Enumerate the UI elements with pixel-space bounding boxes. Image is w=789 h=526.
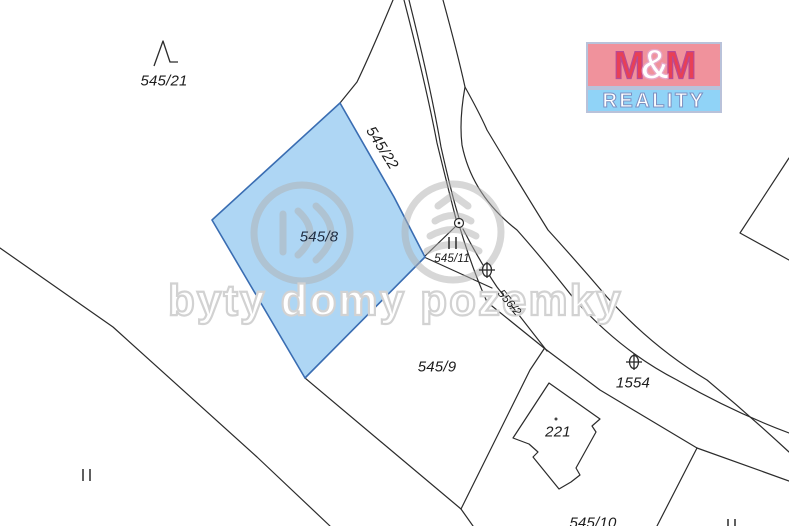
tree-symbol-icon [154, 41, 178, 66]
boundary-line [305, 378, 461, 509]
mm-reality-logo: M&M REALITY [586, 42, 722, 113]
parcel-label-221: 221 [545, 424, 571, 441]
parcel-label-545-11: 545/11 [434, 253, 470, 265]
parcel-label-545-8: 545/8 [300, 229, 339, 246]
logo-m-left: M [614, 46, 643, 85]
parcel-label-1554: 1554 [616, 375, 650, 392]
mm-reality-logo-top: M&M [586, 42, 722, 88]
cadastral-map: byty domy pozemky 545/21 545/22 545/8 54… [0, 0, 789, 526]
logo-m-right: M [665, 46, 694, 85]
building-dot-icon [555, 418, 558, 421]
watermark-text: byty domy pozemky [168, 276, 623, 326]
parcel-label-545-10: 545/10 [569, 515, 616, 526]
boundary-line [697, 448, 789, 481]
road-edge-line [465, 87, 789, 452]
boundary-line [340, 0, 393, 103]
mm-reality-logo-bottom: REALITY [586, 88, 722, 113]
orchard-symbol-icon [626, 354, 642, 370]
logo-ampersand: & [641, 44, 668, 86]
boundary-line [740, 158, 789, 260]
parcel-label-545-21: 545/21 [140, 73, 187, 90]
grassland-symbol-icon [728, 519, 735, 526]
boundary-line [657, 448, 697, 526]
grassland-symbol-icon [83, 469, 90, 481]
logo-reality-text: REALITY [602, 91, 705, 111]
parcel-label-545-9: 545/9 [418, 359, 457, 376]
boundary-point-icon [455, 219, 464, 228]
